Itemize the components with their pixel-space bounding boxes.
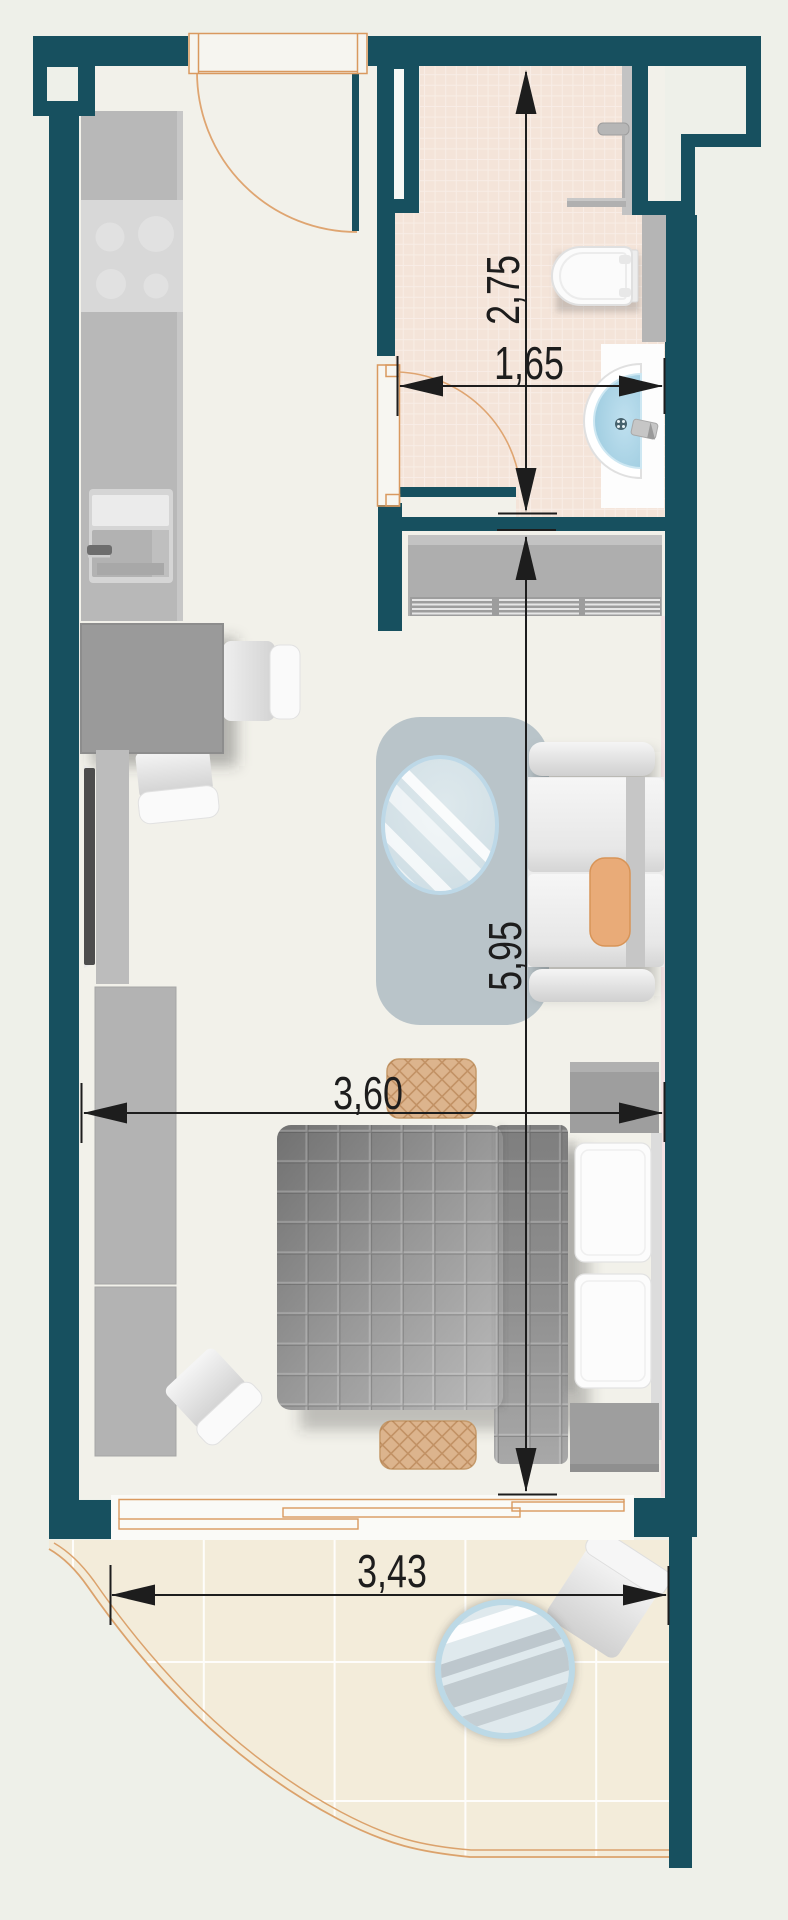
svg-text:5,95: 5,95 <box>480 921 531 991</box>
svg-text:3,43: 3,43 <box>357 1546 427 1597</box>
svg-text:3,60: 3,60 <box>333 1068 403 1119</box>
svg-text:2,75: 2,75 <box>478 255 529 325</box>
svg-text:1,65: 1,65 <box>494 338 564 389</box>
